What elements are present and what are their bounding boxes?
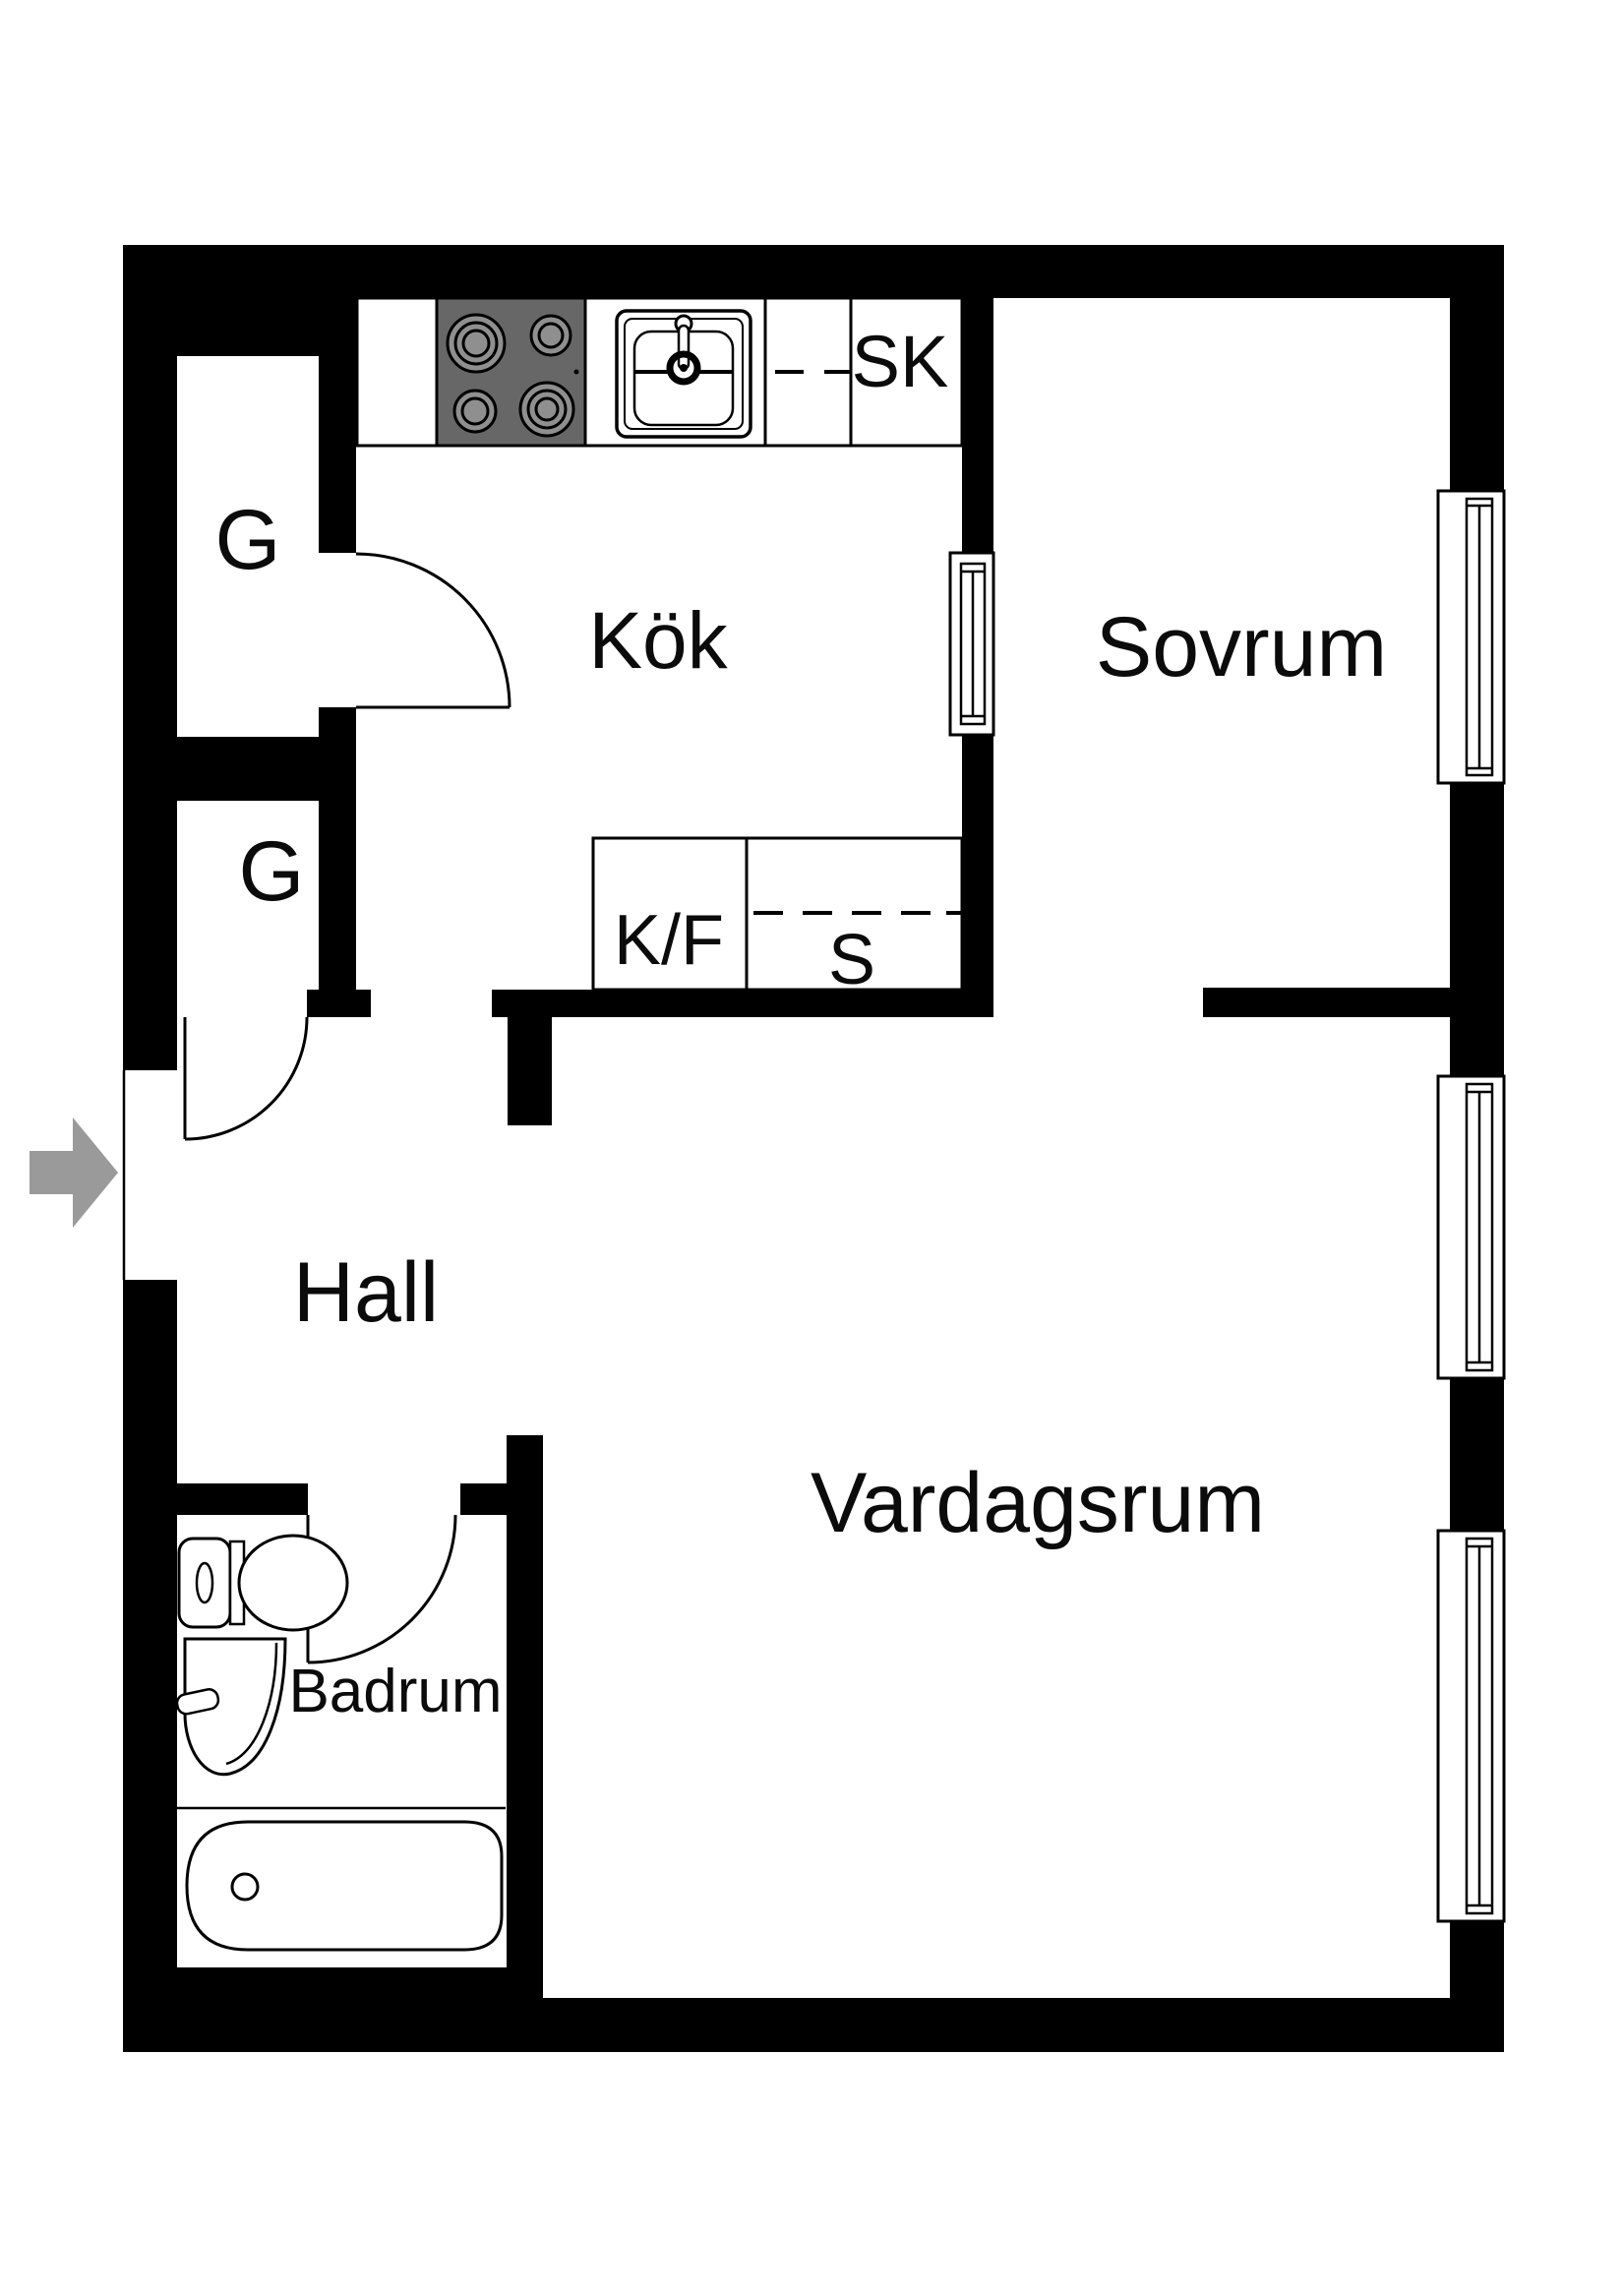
wall-left-lower	[123, 1280, 177, 1998]
room-label-closet-upper: G	[215, 498, 281, 582]
windows	[950, 491, 1504, 1921]
room-label-hall: Hall	[293, 1250, 439, 1335]
wall-bathroom-door-stub	[460, 1483, 507, 1515]
room-label-bedroom: Sovrum	[1096, 605, 1387, 690]
floor-plan-drawing	[0, 0, 1623, 2296]
wall-kitchen-bottom	[492, 990, 993, 1017]
wall-closet1-right	[319, 356, 356, 553]
wall-kitchen-bedroom-lower	[962, 735, 993, 1017]
wall-right-2	[1450, 783, 1504, 1076]
floor-plan: Kök Sovrum Hall Vardagsrum Badrum G G SK…	[0, 0, 1623, 2296]
wall-bathroom-right	[507, 1435, 543, 1998]
cabinet-label-kf: K/F	[614, 905, 724, 976]
wall-bedroom-bottom	[1203, 988, 1504, 1017]
room-label-living-room: Vardagsrum	[811, 1461, 1265, 1545]
bathroom-fixtures	[175, 1536, 506, 1950]
cabinet-label-s: S	[828, 925, 875, 996]
window-icon-living-upper	[1438, 1076, 1504, 1378]
wall-bathroom-top	[175, 1483, 308, 1515]
window-icon-living-lower	[1438, 1531, 1504, 1921]
wall-kitchen-bedroom-upper	[962, 298, 993, 553]
room-label-bathroom: Badrum	[288, 1662, 502, 1722]
wall-closet-top-block	[177, 298, 356, 356]
cabinet-label-sk: SK	[852, 326, 949, 398]
window-icon-bedroom	[1438, 491, 1504, 783]
door-swing-icon-kitchen-closet	[356, 554, 510, 707]
toilet-icon	[179, 1536, 347, 1630]
wall-closet-divider	[123, 737, 356, 801]
wall-closet2-right	[319, 801, 356, 990]
wall-bottom	[123, 1998, 1504, 2052]
door-swing-icon-hall-closet	[185, 1017, 307, 1139]
room-label-kitchen: Kök	[588, 601, 727, 682]
wall-bottom-bathroom	[123, 1967, 543, 1998]
bathtub-icon	[175, 1808, 506, 1950]
wall-closet2-bottom-stub	[307, 990, 371, 1017]
walls	[123, 245, 1504, 2052]
washbasin-icon	[175, 1639, 285, 1775]
entrance-arrow-icon	[30, 1118, 118, 1228]
wall-right-3	[1450, 1378, 1504, 1531]
wall-left-upper	[123, 298, 177, 1070]
wall-right-1	[1450, 298, 1504, 491]
wall-hall-stub	[508, 1017, 552, 1125]
wall-closet1-right-stub	[319, 707, 356, 737]
interior-window-icon	[950, 553, 993, 735]
wall-top	[123, 245, 1504, 298]
wall-right-4	[1450, 1921, 1504, 1998]
room-label-closet-lower: G	[239, 829, 305, 914]
